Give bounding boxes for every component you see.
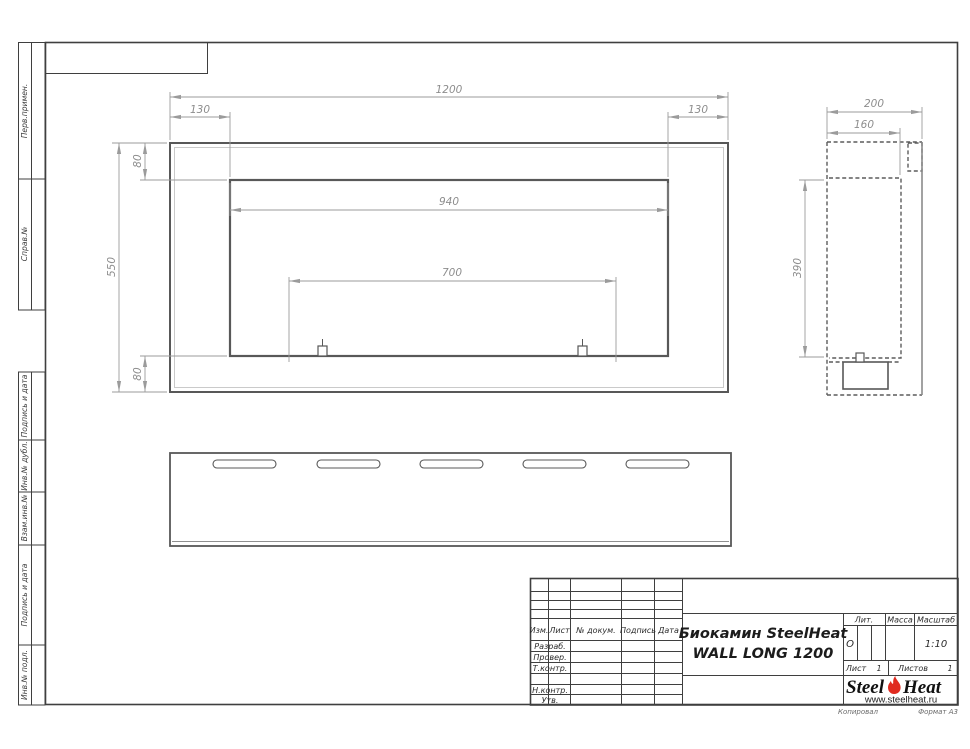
strip-label: Перв.примен.	[20, 84, 29, 139]
dim-mount-span: 700	[442, 267, 462, 279]
side-dimensions: 200 160 390	[792, 98, 922, 357]
lit-value: О	[846, 639, 854, 650]
dim-depth: 200	[864, 98, 884, 110]
sheet-value: 1	[876, 664, 881, 673]
strip-box-vzam-inv: Взам.инв.№	[19, 492, 46, 545]
doc-title-line2: WALL LONG 1200	[693, 646, 834, 662]
dim-overall-width: 1200	[436, 84, 463, 96]
drawing-sheet: Перв.примен. Справ.№ Подпись и дата Инв.…	[0, 0, 970, 749]
dim-top-offset: 80	[132, 154, 144, 168]
row-tkontr: Т.контр.	[533, 664, 568, 673]
strip-label: Инв.№ дубл.	[20, 441, 29, 491]
dim-inner-depth: 160	[854, 119, 874, 131]
revision-header: Изм. Лист № докум. Подпись Дата	[530, 626, 679, 635]
col-izm: Изм.	[530, 626, 549, 635]
strip-box-podpis-data-1: Подпись и дата	[19, 372, 46, 440]
hidden-contour	[827, 142, 922, 395]
strip-label: Взам.инв.№	[20, 495, 29, 542]
strip-box-podpis-data-2: Подпись и дата	[19, 545, 46, 645]
row-nkontr: Н.контр.	[532, 686, 568, 695]
massa-label: Масса	[887, 616, 913, 625]
scale-value: 1:10	[925, 639, 947, 650]
drawing-canvas: Перв.примен. Справ.№ Подпись и дата Инв.…	[0, 0, 970, 749]
logo-url-text: www.steelheat.ru	[864, 695, 937, 706]
front-view: 1200 130 130 550 80 80 9	[106, 84, 728, 392]
strip-box-sprav-no: Справ.№	[19, 179, 46, 310]
left-label-strip: Перв.примен. Справ.№ Подпись и дата Инв.…	[19, 43, 46, 706]
bottom-view	[170, 453, 731, 546]
strip-label: Подпись и дата	[20, 374, 29, 437]
scale-label: Масштаб	[917, 616, 955, 625]
dim-opening-width: 940	[439, 196, 459, 208]
col-list: Лист	[548, 626, 570, 635]
col-docnum: № докум.	[575, 626, 615, 635]
strip-box-inv-podl: Инв.№ подл.	[19, 645, 46, 705]
lit-label: Лит.	[854, 616, 873, 625]
row-razrab: Разраб.	[534, 642, 565, 651]
footer-format: Формат А3	[918, 708, 958, 716]
strip-label: Справ.№	[20, 227, 29, 262]
row-utv: Утв.	[542, 696, 559, 705]
dim-bottom-offset: 80	[132, 367, 144, 381]
dim-overall-height: 550	[106, 257, 118, 277]
strip-label: Инв.№ подл.	[20, 650, 29, 700]
footer-copied: Копировал	[838, 708, 879, 716]
side-view: 200 160 390	[792, 98, 922, 395]
dim-inner-height: 390	[792, 258, 804, 278]
title-block: Изм. Лист № докум. Подпись Дата Разраб. …	[530, 579, 958, 717]
sheets-label: Листов	[897, 664, 928, 673]
flame-icon	[888, 676, 901, 694]
col-data: Дата	[657, 626, 679, 635]
strip-label: Подпись и дата	[20, 563, 29, 626]
sheets-value: 1	[947, 664, 952, 673]
sheet-label: Лист	[845, 664, 867, 673]
dim-left-offset: 130	[190, 104, 210, 116]
row-prover: Провер.	[533, 653, 566, 662]
dim-right-offset: 130	[688, 104, 708, 116]
doc-title-line1: Биокамин SteelHeat	[679, 626, 849, 642]
steelheat-logo: Steel Heat www.steelheat.ru	[846, 676, 942, 706]
strip-box-perv-primen: Перв.примен.	[19, 43, 46, 180]
col-podpis: Подпись	[620, 626, 656, 635]
strip-box-inv-dubl: Инв.№ дубл.	[19, 440, 46, 492]
